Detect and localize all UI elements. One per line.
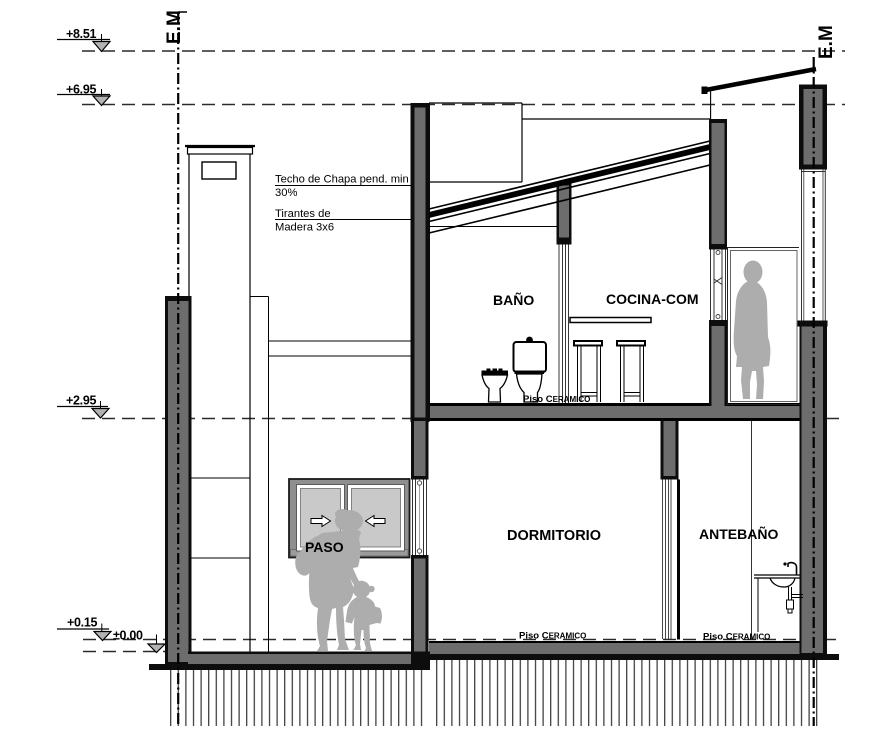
svg-text:+0.15: +0.15 — [67, 616, 97, 630]
svg-text:+2.95: +2.95 — [66, 394, 96, 408]
svg-text:E.M: E.M — [816, 25, 837, 59]
svg-text:±0.00: ±0.00 — [113, 629, 143, 643]
svg-text:Piso CERAMICO: Piso CERAMICO — [519, 631, 586, 642]
svg-text:DORMITORIO: DORMITORIO — [507, 528, 601, 544]
svg-text:30%: 30% — [275, 187, 297, 199]
svg-text:Madera 3x6: Madera 3x6 — [275, 222, 334, 234]
svg-text:Tirantes de: Tirantes de — [275, 208, 331, 220]
svg-text:ANTEBAÑO: ANTEBAÑO — [699, 525, 778, 542]
svg-text:COCINA-COM: COCINA-COM — [606, 291, 699, 307]
svg-text:BAÑO: BAÑO — [493, 291, 534, 308]
svg-text:Techo de Chapa pend. min: Techo de Chapa pend. min — [275, 174, 409, 186]
svg-text:Piso CERAMICO: Piso CERAMICO — [523, 394, 590, 405]
svg-text:PASO: PASO — [305, 539, 344, 555]
svg-text:E.M: E.M — [164, 10, 185, 44]
svg-text:Piso CERAMICO: Piso CERAMICO — [703, 632, 770, 643]
